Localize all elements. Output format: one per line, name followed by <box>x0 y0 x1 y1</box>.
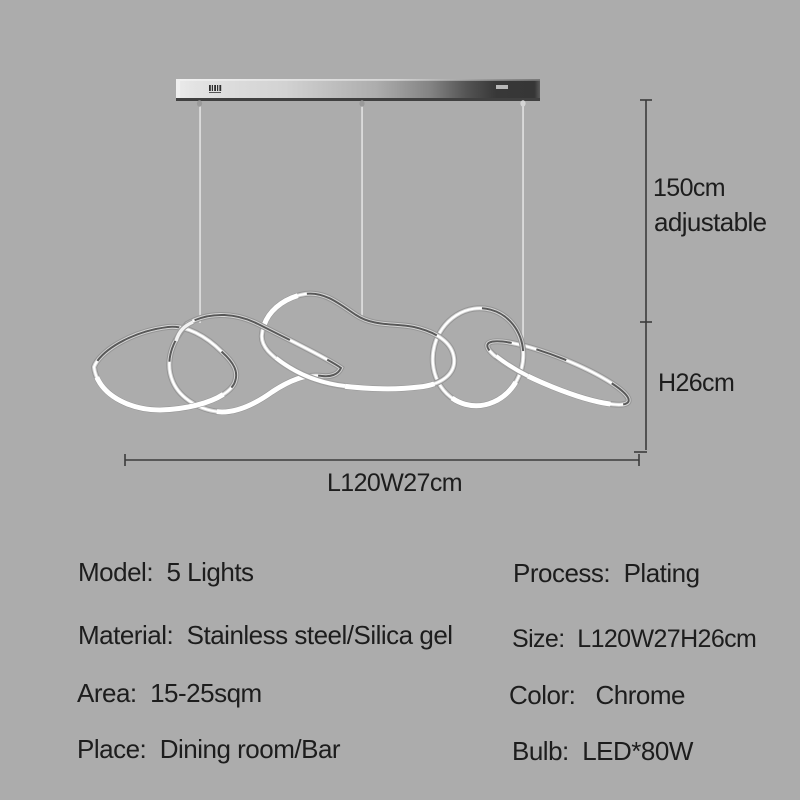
svg-text:Place: Dining room/Bar: Place: Dining room/Bar <box>77 734 341 764</box>
svg-text:Color: Chrome: Color: Chrome <box>509 680 685 710</box>
svg-text:150cm: 150cm <box>653 174 725 202</box>
svg-text:Material: Stainless steel/Sil: Material: Stainless steel/Silica gel <box>78 620 453 650</box>
svg-text:Area: 15-25sqm: Area: 15-25sqm <box>77 678 262 708</box>
svg-text:Bulb: LED*80W: Bulb: LED*80W <box>512 736 694 766</box>
svg-text:Process: Plating: Process: Plating <box>513 558 700 588</box>
svg-text:adjustable: adjustable <box>654 207 767 237</box>
svg-text:Model: 5 Lights: Model: 5 Lights <box>78 557 254 587</box>
svg-text:L120W27cm: L120W27cm <box>327 469 462 497</box>
svg-text:H26cm: H26cm <box>658 369 734 397</box>
svg-text:Size: L120W27H26cm: Size: L120W27H26cm <box>512 625 756 653</box>
